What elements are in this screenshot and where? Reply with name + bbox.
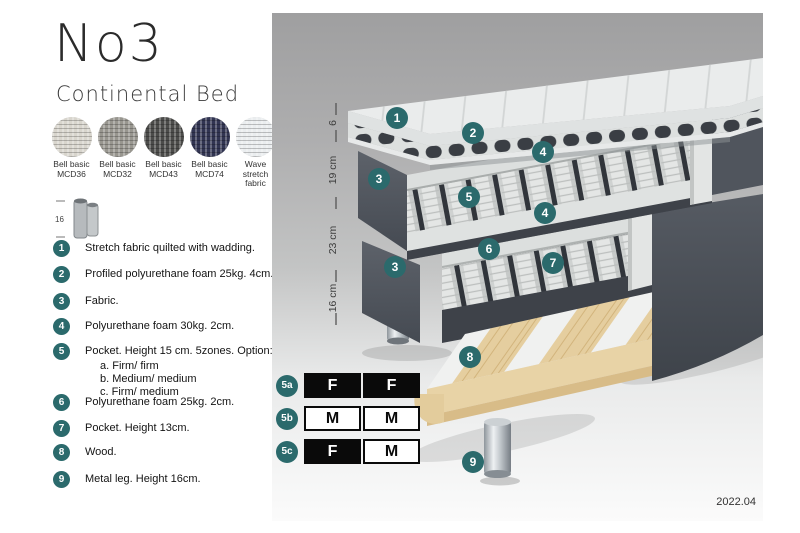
front-leg [484, 418, 511, 478]
callout-9: 9 Metal leg. Height 16cm. [53, 471, 201, 488]
fabric-swatch-icon [236, 117, 276, 157]
badge-5: 5 [458, 186, 480, 208]
swatch-mcd36: Bell basicMCD36 [50, 117, 93, 189]
badge-2: 2 [462, 122, 484, 144]
fabric-swatch-icon [98, 117, 138, 157]
product-sheet: No3 Continental Bed Bell basicMCD36 Bell… [0, 0, 800, 533]
page-title: No3 [54, 16, 164, 72]
svg-text:7: 7 [550, 256, 557, 270]
swatch-wave: Wavestretch fabric [234, 117, 277, 189]
svg-text:6: 6 [486, 242, 493, 256]
svg-text:3: 3 [376, 172, 383, 186]
badge-8: 8 [459, 346, 481, 368]
firmness-cell: M [363, 406, 420, 431]
fabric-swatch-icon [190, 117, 230, 157]
svg-text:9: 9 [470, 455, 477, 469]
badge-4-upper: 4 [532, 141, 554, 163]
swatch-mcd43: Bell basicMCD43 [142, 117, 185, 189]
svg-text:4: 4 [540, 145, 547, 159]
badge-6: 6 [478, 238, 500, 260]
firmness-row-5c: 5c F M [276, 439, 420, 464]
firmness-row-5a: 5a F F [276, 373, 420, 398]
badge-7: 7 [542, 252, 564, 274]
leg-glyph [74, 199, 98, 239]
callout-7-badge: 7 [53, 420, 70, 437]
firmness-cell: F [304, 439, 361, 464]
badge-3-upper: 3 [368, 168, 390, 190]
callout-7: 7 Pocket. Height 13cm. [53, 420, 190, 437]
svg-text:1: 1 [394, 111, 401, 125]
svg-text:3: 3 [392, 260, 399, 274]
firmness-cell: M [304, 406, 361, 431]
callout-5: 5 Pocket. Height 15 cm. 5zones. Option: … [53, 343, 273, 399]
fabric-swatch-icon [52, 117, 92, 157]
badge-3-lower: 3 [384, 256, 406, 278]
callout-6-badge: 6 [53, 394, 70, 411]
callout-8-badge: 8 [53, 444, 70, 461]
firmness-cell: M [363, 439, 420, 464]
svg-text:5: 5 [466, 190, 473, 204]
callout-3-badge: 3 [53, 293, 70, 310]
page-subtitle: Continental Bed [56, 82, 239, 106]
callout-5-badge: 5 [53, 343, 70, 360]
svg-text:4: 4 [542, 206, 549, 220]
callout-1-badge: 1 [53, 240, 70, 257]
firmness-cell: F [363, 373, 420, 398]
callout-6: 6 Polyurethane foam 25kg. 2cm. [53, 394, 234, 411]
dim-16: 16 cm [327, 283, 339, 312]
callout-2-badge: 2 [53, 266, 70, 283]
badge-9: 9 [462, 451, 484, 473]
fabric-swatches: Bell basicMCD36 Bell basicMCD32 Bell bas… [50, 117, 277, 189]
leg-dim-label: 16 [55, 215, 64, 224]
badge-1: 1 [386, 107, 408, 129]
callout-4-badge: 4 [53, 318, 70, 335]
firmness-5a-badge: 5a [276, 375, 298, 397]
svg-text:2: 2 [470, 126, 477, 140]
callout-9-badge: 9 [53, 471, 70, 488]
callout-4: 4 Polyurethane foam 30kg. 2cm. [53, 318, 234, 335]
fabric-swatch-icon [144, 117, 184, 157]
dim-19: 19 cm [327, 155, 339, 184]
callout-3: 3 Fabric. [53, 293, 119, 310]
dim-6: 6 [327, 120, 339, 126]
swatch-mcd74: Bell basicMCD74 [188, 117, 231, 189]
swatch-mcd32: Bell basicMCD32 [96, 117, 139, 189]
firmness-5b-badge: 5b [276, 408, 298, 430]
version-label: 2022.04 [690, 496, 756, 508]
firmness-row-5b: 5b M M [276, 406, 420, 431]
firmness-cell: F [304, 373, 361, 398]
callout-1: 1 Stretch fabric quilted with wadding. [53, 240, 255, 257]
dim-23: 23 cm [327, 225, 339, 254]
callout-2: 2 Profiled polyurethane foam 25kg. 4cm. [53, 266, 273, 283]
badge-4-lower: 4 [534, 202, 556, 224]
firmness-5c-badge: 5c [276, 441, 298, 463]
callout-8: 8 Wood. [53, 444, 117, 461]
svg-text:8: 8 [467, 350, 474, 364]
